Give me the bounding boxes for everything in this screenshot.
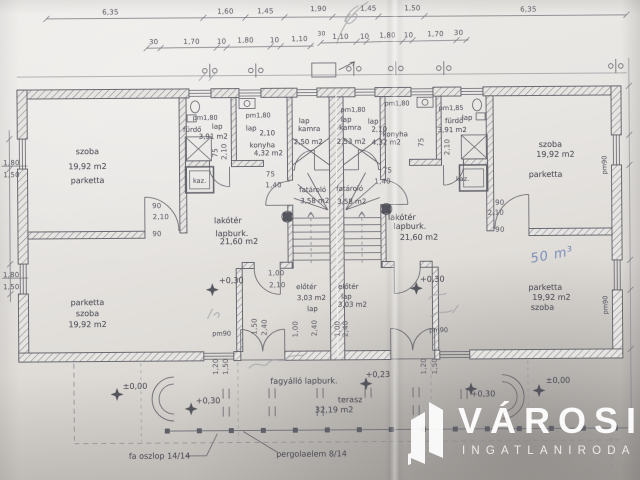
dim-label: 75 bbox=[266, 170, 275, 178]
room-floor: parketta bbox=[528, 283, 562, 292]
room-floor: lap bbox=[212, 123, 223, 131]
level-label: ±0,00 bbox=[546, 376, 571, 385]
room-area: 2,53 m2 bbox=[337, 138, 366, 146]
dim-label: 75 bbox=[383, 166, 392, 174]
room-label-szoba-tl: szoba bbox=[76, 147, 99, 156]
level-label: +0,30 bbox=[420, 275, 445, 284]
room-area: 21,60 m2 bbox=[220, 237, 258, 246]
dim-label: 10 bbox=[404, 31, 413, 39]
dim-label: 1,80 bbox=[379, 31, 395, 39]
room-label-szoba-bl: szoba bbox=[76, 309, 99, 318]
room-area: 3,91 m2 bbox=[438, 126, 467, 134]
dim-label: 1,50 bbox=[3, 171, 19, 179]
terasz-floor: fagyálló lapburk. bbox=[270, 376, 337, 385]
room-area: 21,60 m2 bbox=[400, 233, 438, 242]
room-floor: lap bbox=[299, 117, 310, 125]
parapet-label: pm1,80 bbox=[193, 114, 218, 122]
parapet-label: pm1,80 bbox=[341, 106, 366, 114]
room-floor: parketta bbox=[529, 170, 563, 179]
dim-label: 90 bbox=[495, 226, 504, 234]
dim-label: 10 bbox=[270, 36, 279, 44]
dim-label: 1,70 bbox=[427, 30, 443, 38]
dim-label: 75 bbox=[417, 138, 425, 147]
dim-label: 1,50 bbox=[3, 283, 19, 291]
dim-label: 1,10 bbox=[291, 35, 307, 43]
dim-label: 1,00 bbox=[334, 321, 342, 337]
room-label-lakoter-l: lakótér bbox=[214, 216, 242, 225]
room-area: 32,19 m2 bbox=[315, 405, 353, 414]
room-floor: lap bbox=[368, 118, 379, 126]
dim-label: 1,40 bbox=[265, 181, 281, 189]
watermark-logo: VÁROSI INGATLANIRODA bbox=[408, 390, 640, 478]
level-label: +0,30 bbox=[196, 396, 221, 405]
room-area: 3,58 m2 bbox=[300, 197, 329, 205]
room-label-szoba-br: szoba bbox=[531, 303, 554, 312]
room-label-eloter-l: előtér bbox=[296, 283, 317, 291]
dim-label: 75 bbox=[211, 148, 219, 157]
dim-label: 1,80 bbox=[3, 159, 19, 167]
room-floor: lapburk. bbox=[393, 222, 426, 231]
parapet-label: pm1,80 bbox=[246, 111, 271, 119]
room-label-terasz: terasz bbox=[338, 395, 363, 404]
room-label-kamra-r: kamra bbox=[339, 124, 361, 132]
dim-label: 1,50 bbox=[222, 358, 230, 374]
room-area: 4,32 m2 bbox=[254, 149, 283, 157]
dim-label: 30 bbox=[149, 38, 158, 46]
room-area: 19,92 m2 bbox=[68, 162, 106, 171]
parapet-label: pm1,85 bbox=[439, 104, 464, 112]
parapet-label: pm90 bbox=[429, 326, 448, 334]
dim-label: 6,35 bbox=[520, 5, 536, 13]
logo-title: VÁROSI bbox=[458, 400, 640, 442]
dim-label: 1,90 bbox=[310, 5, 326, 13]
boiler-label: kaz. bbox=[456, 175, 469, 183]
room-label-kamra-l: kamra bbox=[298, 125, 320, 133]
dim-label: 1,80 bbox=[3, 271, 19, 279]
room-label-eloter-r: előtér bbox=[338, 283, 359, 291]
parapet-label: pm90 bbox=[212, 330, 231, 338]
dim-label: 1,00 bbox=[268, 269, 284, 277]
dim-label: 30 bbox=[318, 30, 326, 37]
logo-subtitle: INGATLANIRODA bbox=[462, 445, 636, 457]
room-floor: parketta bbox=[71, 298, 105, 307]
room-floor: lap bbox=[462, 114, 473, 122]
dim-label: 6,35 bbox=[102, 8, 118, 16]
room-area: 3,03 m2 bbox=[338, 301, 367, 309]
room-label-lakoter-r: lakótér bbox=[388, 213, 416, 222]
dim-label: 1,50 bbox=[404, 4, 420, 12]
room-area: 19,92 m2 bbox=[532, 293, 570, 302]
dim-label: 2,10 bbox=[443, 139, 451, 155]
dim-label: 90 bbox=[152, 202, 161, 210]
parapet-label: pm90 bbox=[600, 156, 608, 175]
dim-label: 2,10 bbox=[259, 129, 275, 137]
dim-label: 1,45 bbox=[360, 5, 376, 13]
dim-label: 90 bbox=[152, 230, 161, 238]
room-area: 3,91 m2 bbox=[199, 133, 228, 141]
dim-label: 2,40 bbox=[261, 319, 269, 335]
room-area: 19,92 m2 bbox=[68, 320, 106, 329]
dim-label: 2,10 bbox=[269, 281, 285, 289]
room-floor: lap bbox=[341, 116, 352, 124]
dim-label: 1,80 bbox=[237, 36, 253, 44]
room-floor: lap bbox=[307, 305, 318, 313]
room-label-szoba-tr: szoba bbox=[539, 140, 562, 149]
level-label: +0,30 bbox=[219, 276, 244, 285]
room-label-fatarolo-l: fatároló bbox=[299, 186, 326, 194]
room-floor: parketta bbox=[71, 176, 105, 185]
room-label-konyha-l: konyha bbox=[250, 141, 275, 149]
dim-label: 1,40 bbox=[374, 178, 390, 186]
parapet-label: pm1,80 bbox=[385, 99, 410, 107]
level-label: +0,23 bbox=[366, 370, 391, 379]
dim-label: 2,10 bbox=[488, 209, 504, 217]
dim-label: 2,40 bbox=[342, 321, 350, 337]
room-label-konyha-r: konyha bbox=[383, 130, 408, 138]
dim-label: 90 bbox=[495, 199, 504, 207]
room-area: 2,50 m2 bbox=[294, 138, 323, 146]
room-floor: lap bbox=[246, 124, 257, 132]
dim-label: 2,10 bbox=[220, 143, 228, 159]
dim-label: 1,20 bbox=[420, 358, 428, 374]
dim-label: 30 bbox=[454, 29, 463, 37]
dim-label: 1,10 bbox=[332, 33, 348, 41]
note-pergola: pergolaelem 8/14 bbox=[276, 449, 347, 458]
room-label-furdo-r: fürdő bbox=[445, 117, 463, 125]
note-fa-oszlop: fa oszlop 14/14 bbox=[129, 451, 190, 460]
buildings-icon bbox=[408, 392, 456, 474]
dim-label: 1,00 bbox=[292, 321, 300, 337]
dim-label: 2,10 bbox=[153, 213, 169, 221]
floor-plan-photo: 6,35 1,60 1,45 1,90 1,45 1,50 6,35 30 1,… bbox=[0, 0, 640, 480]
parapet-label: pm90 bbox=[601, 296, 609, 315]
room-area: 3,58 m2 bbox=[337, 198, 366, 206]
dim-label: 1,50 bbox=[431, 358, 439, 374]
room-area: 3,03 m2 bbox=[297, 294, 326, 302]
handwritten-volume-note: 50 m³ bbox=[529, 244, 575, 267]
dim-label: 2,40 bbox=[311, 320, 319, 336]
room-area: 4,32 m2 bbox=[372, 138, 401, 146]
boiler-label: kaz. bbox=[193, 177, 206, 185]
room-area: 19,92 m2 bbox=[536, 150, 574, 159]
dim-label: 1,60 bbox=[217, 8, 233, 16]
dim-label: 1,70 bbox=[183, 38, 199, 46]
room-floor: lap bbox=[341, 293, 352, 301]
dim-label: 1,50 bbox=[251, 318, 259, 334]
dim-label: 10 bbox=[360, 33, 369, 41]
dim-label: 1,20 bbox=[212, 359, 220, 375]
dim-label: 10 bbox=[217, 38, 226, 46]
room-label-fatarolo-r: fatároló bbox=[336, 185, 363, 193]
dim-label: 1,45 bbox=[257, 7, 273, 15]
level-label: ±0,00 bbox=[123, 382, 148, 391]
